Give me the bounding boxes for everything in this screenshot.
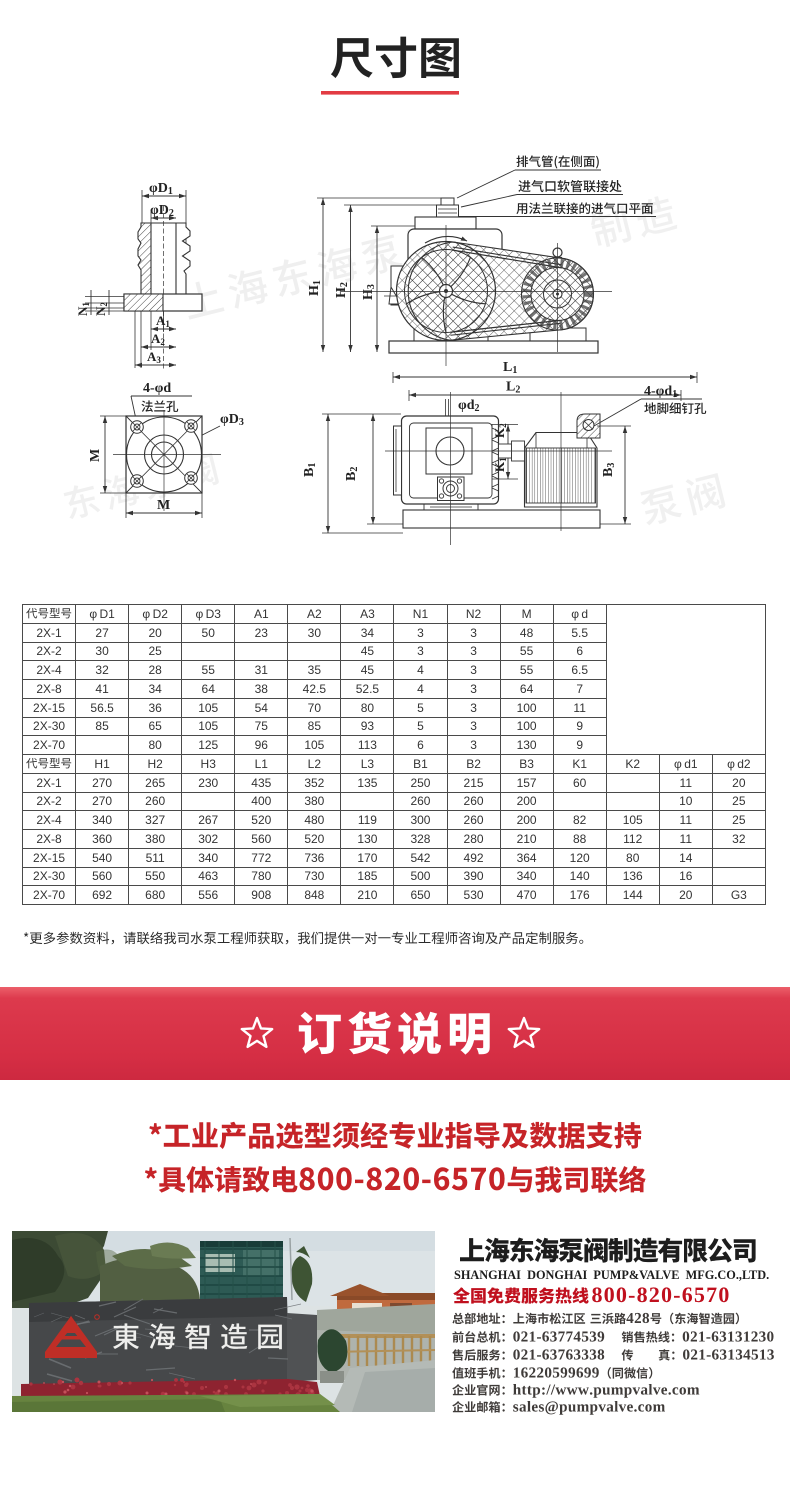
svg-text:L1: L1 [503,360,517,376]
svg-text:A2: A2 [151,331,165,347]
svg-text:B3: B3 [601,463,617,477]
svg-text:N1: N1 [75,302,91,316]
svg-text:φd2: φd2 [458,398,480,414]
svg-text:N2: N2 [93,302,109,316]
svg-text:B2: B2 [344,467,360,481]
svg-text:A3: A3 [147,349,161,365]
svg-text:B1: B1 [302,463,318,477]
svg-text:H3: H3 [361,284,377,300]
svg-text:M: M [157,498,170,513]
svg-text:φD1: φD1 [149,181,173,197]
svg-text:A1: A1 [156,313,170,329]
svg-text:L2: L2 [506,380,520,396]
svg-text:4-φd: 4-φd [143,381,171,396]
svg-text:4-φd1: 4-φd1 [644,384,677,400]
svg-text:M: M [88,449,103,462]
svg-text:H1: H1 [307,280,323,296]
svg-text:φD3: φD3 [220,412,244,428]
svg-text:H2: H2 [334,282,350,298]
